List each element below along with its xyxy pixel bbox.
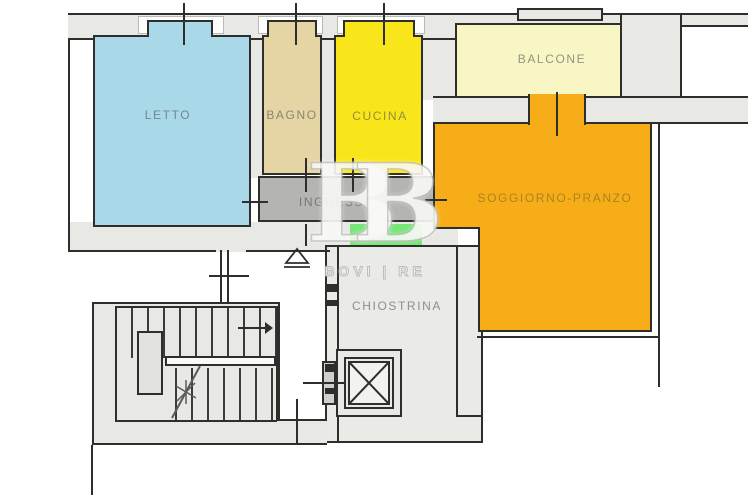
label-cucina: CUCINA — [352, 109, 408, 123]
room-soggiorno-lower — [478, 227, 652, 332]
wall-line-right-stub — [658, 122, 660, 387]
label-bagno: BAGNO — [266, 108, 317, 122]
wall-top-right-carve — [682, 25, 748, 40]
jamb-mark-2 — [325, 300, 337, 306]
hall-bottom-line-left — [68, 250, 216, 252]
door-tick-stair-corridor — [296, 399, 298, 444]
watermark-brand: BOVI | RE — [300, 263, 450, 279]
stair-direction-arrow-icon — [236, 318, 274, 338]
stair-break-line-icon — [164, 360, 208, 422]
wall-strip-cucina-balcone — [423, 40, 457, 100]
window-tick-cucina — [383, 3, 385, 45]
wall-band-under-balcone — [433, 96, 748, 124]
door-tick-landing — [209, 275, 249, 277]
elevator-x-icon — [348, 361, 390, 405]
balcone-rail-bump — [517, 8, 603, 21]
watermark-logo: BB — [303, 150, 447, 268]
bagno-window-bay — [267, 20, 317, 37]
corridor-stairs-chiostrina — [277, 419, 327, 445]
label-chiostrina: CHIOSTRINA — [352, 299, 442, 313]
wall-line-under-soggiorno — [477, 336, 660, 338]
door-tick-elevator — [303, 382, 345, 384]
room-soggiorno-upper — [433, 122, 652, 229]
letto-window-bay — [147, 20, 213, 37]
jamb-mark-3 — [325, 364, 337, 372]
landing-wall-line-b — [227, 250, 229, 304]
window-tick-letto — [183, 3, 185, 45]
room-letto — [93, 35, 251, 227]
landing-wall-line-a — [220, 250, 222, 304]
chiostrina-inner-wall-bottom — [456, 415, 483, 417]
window-tick-bagno — [295, 3, 297, 45]
jamb-mark-4 — [325, 388, 337, 394]
door-tick-balcone-soggiorno — [556, 92, 558, 136]
stair-core-landing — [137, 331, 163, 395]
door-tick-letto-ingresso — [242, 201, 268, 203]
outer-wall-left-line — [68, 38, 70, 252]
wall-block-right-of-balcone — [620, 13, 682, 100]
label-balcone: BALCONE — [518, 52, 587, 66]
cucina-window-bay — [343, 20, 415, 37]
jamb-mark-1 — [325, 284, 337, 292]
label-soggiorno: SOGGIORNO-PRANZO — [478, 191, 633, 205]
stair-ext-wall-line — [91, 445, 93, 495]
floor-plan: LETTO BAGNO CUCINA BALCONE SOGGIORNO-PRA… — [0, 0, 750, 500]
chiostrina-inner-wall-right — [456, 247, 458, 417]
label-letto: LETTO — [145, 108, 191, 122]
